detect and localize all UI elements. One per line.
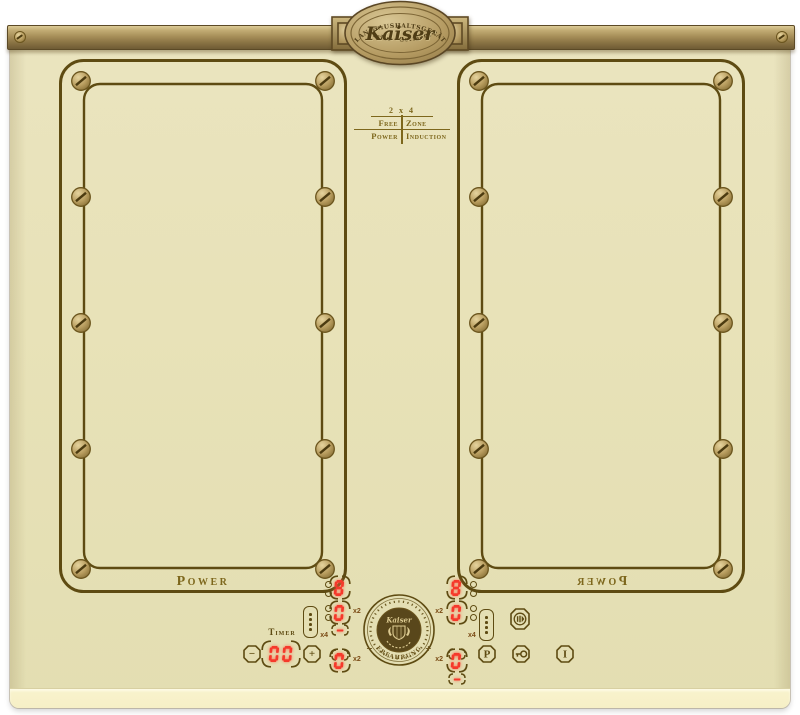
badge-name: Kaiser (365, 23, 437, 45)
free-zone-zone: Zone (402, 118, 452, 128)
timer-label: Timer (258, 627, 306, 637)
kaiser-badge: OLAN-HAUSHALTSGERÄTE Berlin · Germany Ka… (325, 0, 475, 66)
zone-left-power-label: Power (177, 574, 230, 589)
mult-label: x2 (429, 608, 443, 615)
function-button[interactable] (510, 608, 530, 630)
kaiser-induction-hob: OLAN-HAUSHALTSGERÄTE Berlin · Germany Ka… (0, 0, 800, 715)
emblem-name: Kaiser (385, 616, 413, 625)
display-right-rear[interactable] (446, 575, 468, 600)
display-right-front[interactable] (446, 648, 468, 673)
power-on-off-button[interactable]: I (556, 645, 574, 663)
bridge-dash (451, 674, 464, 685)
timer-minus-button[interactable]: − (243, 645, 261, 663)
free-zone-free: Free (352, 118, 402, 128)
booster-button[interactable]: P (478, 645, 496, 663)
display-right-main[interactable] (446, 600, 468, 625)
emblem-plus-mark: + (425, 644, 432, 653)
timer-plus-button[interactable]: + (303, 645, 321, 663)
on-off-i-label: I (563, 649, 567, 661)
free-zone-power: Power (352, 131, 402, 141)
digit-left-front (333, 652, 346, 670)
emblem-minus-mark: − (366, 644, 373, 653)
digit-left-main (333, 604, 346, 622)
zone-right-power-label: Power (575, 574, 628, 589)
display-left-main[interactable] (329, 600, 351, 625)
front-edge (10, 688, 790, 708)
cooking-zone-right: Power (455, 57, 747, 595)
bridge-dash (334, 625, 347, 636)
indicator-dot (470, 581, 477, 588)
child-lock-button[interactable] (512, 645, 530, 663)
digit-left-rear (333, 579, 346, 597)
timer-display[interactable] (261, 640, 301, 668)
mult-label: x4 (314, 632, 328, 639)
digit-right-main (450, 604, 463, 622)
free-zone-induction: Induction (402, 131, 452, 141)
indicator-dot (470, 590, 477, 597)
free-zone-line1: 2 x 4 (352, 106, 452, 115)
key-icon (516, 651, 527, 657)
bridge-indicator-left-upper (331, 624, 349, 636)
divider (401, 115, 402, 144)
cooking-zone-left: Power (57, 57, 349, 595)
boost-p-label: P (484, 649, 491, 661)
power-slider-right[interactable] (479, 609, 494, 641)
minus-icon: − (249, 648, 255, 660)
digit-right-front (450, 652, 463, 670)
display-left-front[interactable] (329, 648, 351, 673)
bridge-indicator-right-lower (448, 673, 466, 685)
indicator-dot (470, 614, 477, 621)
timer-digits (268, 645, 295, 663)
free-zone-logo: 2 x 4 Free Zone Power Induction (352, 106, 452, 141)
function-bars-icon (514, 613, 526, 625)
display-left-rear[interactable] (329, 575, 351, 600)
rail-screw-icon (776, 31, 788, 43)
digit-right-rear (450, 579, 463, 597)
mult-label: x2 (429, 656, 443, 663)
zone-screws (72, 72, 335, 579)
zone-screws (470, 72, 733, 579)
indicator-dot (470, 605, 477, 612)
plus-icon: + (309, 648, 315, 660)
rail-screw-icon (14, 31, 26, 43)
